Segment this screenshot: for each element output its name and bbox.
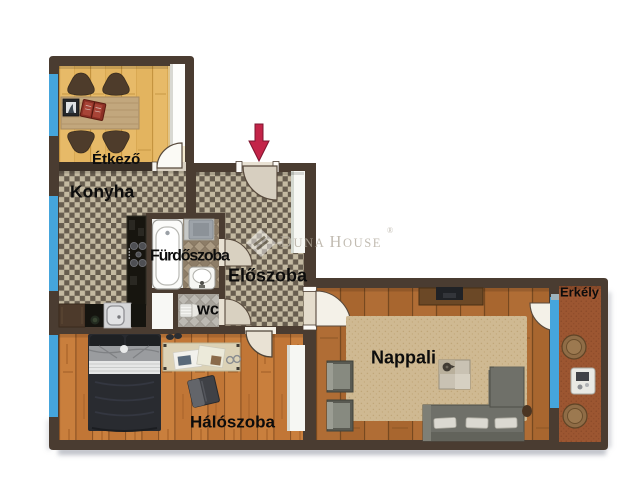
svg-text:Étkező: Étkező (92, 151, 140, 168)
svg-text:Konyha: Konyha (70, 182, 134, 202)
svg-text:wc: wc (196, 301, 219, 319)
svg-text:Előszoba: Előszoba (228, 266, 308, 286)
svg-text:®: ® (387, 226, 393, 235)
svg-text:Hálószoba: Hálószoba (190, 413, 276, 432)
svg-text:Fürdőszoba: Fürdőszoba (150, 248, 230, 265)
svg-text:Erkély: Erkély (560, 285, 600, 300)
svg-text:Nappali: Nappali (371, 348, 436, 368)
